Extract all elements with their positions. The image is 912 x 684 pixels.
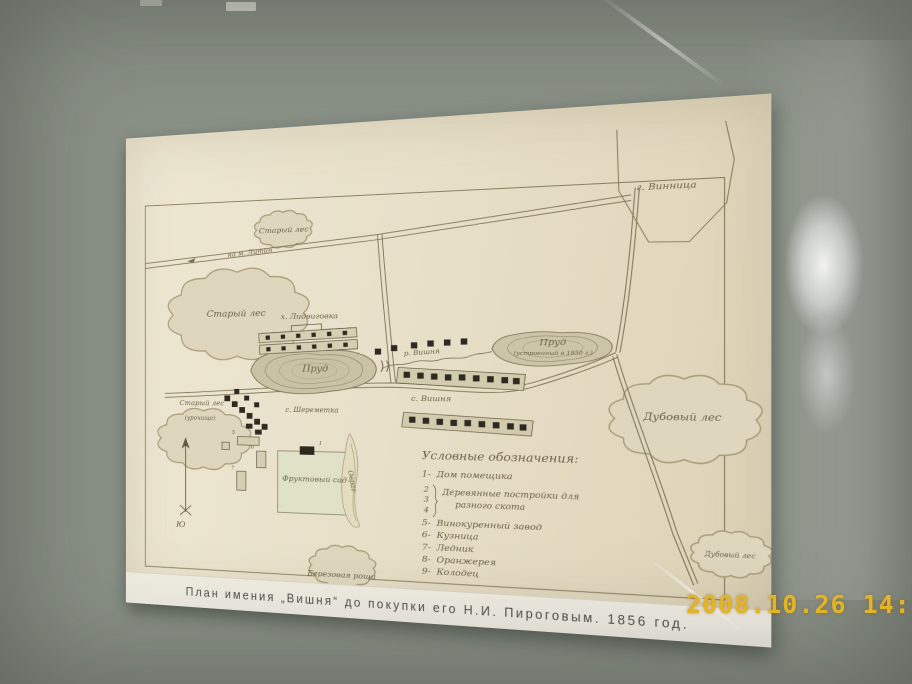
road-litin-label: на м. Литин bbox=[227, 246, 272, 259]
hamlet-label: х. Лидвиговка bbox=[281, 311, 339, 321]
village-sheremetka-label: с. Шереметка bbox=[285, 406, 338, 415]
road-to-vinnitsa bbox=[620, 188, 639, 353]
city-vinnitsa-label: г. Винница bbox=[636, 180, 696, 194]
road-vertical bbox=[378, 234, 391, 383]
building-number: 7 bbox=[231, 465, 235, 471]
wall-mark bbox=[226, 2, 256, 11]
legend-item-text: Кузница bbox=[435, 531, 478, 543]
pond-right bbox=[492, 331, 612, 366]
pond-left-label: Пруд bbox=[301, 364, 328, 375]
forest-left-lower-label: Старый лес bbox=[179, 398, 224, 407]
road-top bbox=[145, 200, 631, 268]
building-number: 6 bbox=[251, 445, 255, 451]
road-top bbox=[145, 195, 631, 264]
wall-mark bbox=[140, 0, 162, 6]
legend-item-num: 5- bbox=[422, 518, 431, 529]
legend-item-num: 9- bbox=[422, 567, 431, 578]
legend-item-num: 7- bbox=[422, 542, 431, 553]
estate-buildings bbox=[222, 423, 352, 515]
legend-item-text: Дом помещика bbox=[435, 470, 512, 483]
pond-right-label: Пруд bbox=[538, 337, 567, 348]
map-drawing: Старый лес на м. Литин Старый лес Старый… bbox=[126, 93, 771, 611]
museum-photo-scene: Старый лес на м. Литин Старый лес Старый… bbox=[0, 0, 912, 684]
legend: Условные обозначения: 1- Дом помещика 2 … bbox=[422, 449, 580, 586]
legend-item-text: разного скота bbox=[455, 500, 525, 512]
legend-item-text: Оранжерея bbox=[437, 555, 497, 568]
legend-item-text: Деревянные постройки для bbox=[441, 487, 579, 501]
glass-reflection-spot bbox=[785, 195, 863, 335]
glass-reflection-spot bbox=[798, 315, 856, 435]
forest-oak-label: Дубовый лес bbox=[642, 411, 722, 424]
camera-timestamp: 2008.10.26 14:24 bbox=[686, 590, 912, 619]
legend-item-num: 8- bbox=[422, 554, 431, 565]
legend-title: Условные обозначения: bbox=[422, 449, 579, 466]
legend-item-num: 6- bbox=[422, 530, 431, 541]
legend-item-num: 3 bbox=[424, 495, 429, 504]
river-label: р. Вишня bbox=[403, 347, 440, 358]
building-number: 1 bbox=[319, 441, 323, 447]
building-number: 5 bbox=[232, 430, 236, 436]
compass-south-label: Ю bbox=[175, 520, 185, 530]
legend-item-num: 2 bbox=[423, 484, 429, 493]
legend-item-num: 4 bbox=[423, 505, 429, 514]
forest-left-lower-sub: (урочище) bbox=[185, 415, 216, 422]
legend-item-text: Колодец bbox=[435, 567, 479, 580]
forest-left-label: Старый лес bbox=[207, 308, 267, 320]
village-vishnya-label: с. Вишня bbox=[411, 394, 451, 404]
glass-reflection-streak bbox=[597, 0, 725, 87]
legend-item-text: Ледник bbox=[435, 543, 474, 555]
map-paper: Старый лес на м. Литин Старый лес Старый… bbox=[126, 93, 771, 647]
manor-house bbox=[300, 446, 315, 455]
legend-item-num: 1- bbox=[422, 469, 431, 479]
legend-brace bbox=[433, 485, 438, 517]
pond-right-note: (устроенный в 1850 г.) bbox=[514, 349, 593, 357]
